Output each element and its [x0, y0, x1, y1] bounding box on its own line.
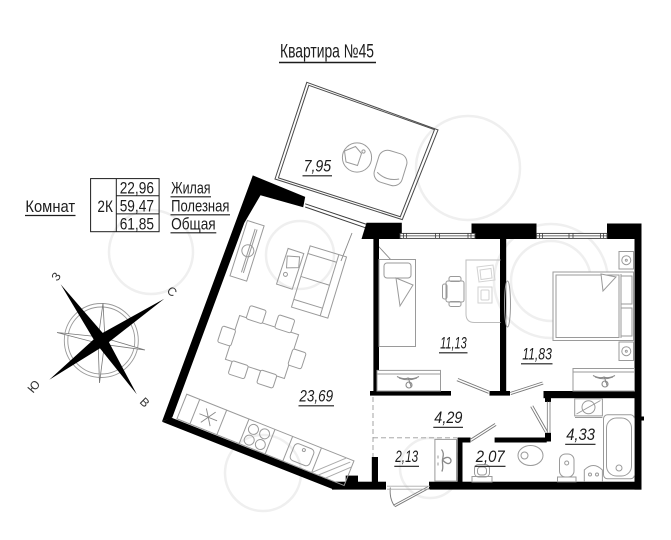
- svg-text:2К: 2К: [97, 197, 113, 216]
- svg-text:11,13: 11,13: [440, 335, 467, 353]
- svg-text:22,96: 22,96: [120, 179, 154, 198]
- svg-text:59,47: 59,47: [120, 197, 154, 216]
- svg-text:Квартира №45: Квартира №45: [280, 42, 374, 63]
- svg-text:Общая: Общая: [171, 215, 216, 234]
- svg-text:Жилая: Жилая: [171, 179, 210, 198]
- svg-text:4,29: 4,29: [434, 409, 462, 427]
- svg-text:61,85: 61,85: [120, 215, 154, 234]
- svg-text:2,07: 2,07: [475, 448, 506, 466]
- svg-text:Комнат: Комнат: [25, 197, 75, 216]
- svg-text:11,83: 11,83: [522, 346, 552, 364]
- svg-text:2,13: 2,13: [395, 448, 419, 466]
- svg-text:Полезная: Полезная: [171, 197, 229, 216]
- svg-text:23,69: 23,69: [299, 388, 334, 406]
- svg-text:7,95: 7,95: [304, 158, 332, 176]
- svg-text:4,33: 4,33: [566, 426, 596, 444]
